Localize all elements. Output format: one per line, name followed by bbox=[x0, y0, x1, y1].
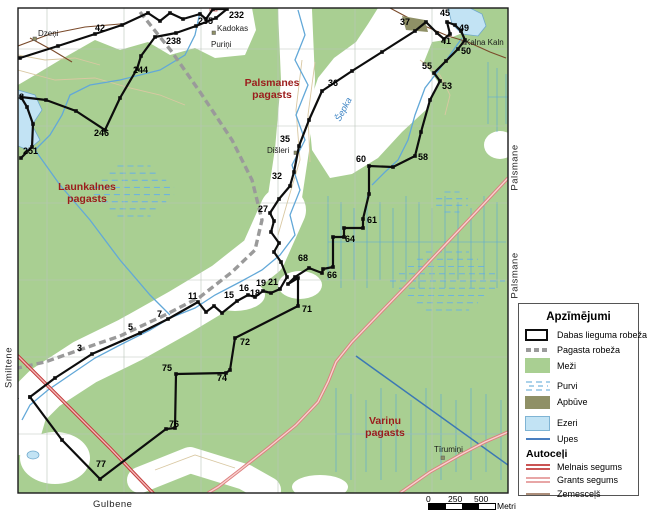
boundary-vertex bbox=[391, 165, 395, 169]
neighbor-label-palsmane-upper: Palsmane bbox=[510, 128, 521, 208]
boundary-vertex bbox=[286, 282, 290, 286]
boundary-vertex bbox=[28, 395, 32, 399]
boundary-vertex bbox=[279, 260, 283, 264]
reserve-boundary-symbol bbox=[525, 329, 551, 341]
boundary-point-label: 5 bbox=[128, 322, 133, 332]
boundary-vertex bbox=[272, 219, 276, 223]
boundary-point-label: 36 bbox=[328, 78, 338, 88]
boundary-vertex bbox=[53, 376, 57, 380]
boundary-vertex bbox=[331, 235, 335, 239]
boundary-vertex bbox=[60, 438, 64, 442]
boundary-vertex bbox=[432, 71, 436, 75]
boundary-vertex bbox=[380, 50, 384, 54]
boundary-vertex bbox=[419, 130, 423, 134]
boundary-point-label: 18 bbox=[250, 288, 260, 298]
boundary-vertex bbox=[288, 184, 292, 188]
boundary-point-label: 11 bbox=[188, 291, 198, 301]
legend-item-built-up: Apbūve bbox=[525, 396, 632, 409]
boundary-point-label: 61 bbox=[367, 215, 377, 225]
parish-name-label: Palsmanes bbox=[245, 77, 300, 89]
boundary-point-label: 75 bbox=[162, 363, 172, 373]
boundary-vertex bbox=[435, 31, 439, 35]
boundary-point-label: 58 bbox=[418, 152, 428, 162]
boundary-vertex bbox=[297, 144, 301, 148]
boundary-vertex bbox=[269, 230, 273, 234]
boundary-vertex bbox=[56, 44, 60, 48]
boundary-point-label: 16 bbox=[239, 283, 249, 293]
legend-item-paved-road: Melnais segums bbox=[525, 462, 632, 472]
boundary-vertex bbox=[98, 477, 102, 481]
boundary-vertex bbox=[204, 310, 208, 314]
boundary-vertex bbox=[269, 291, 273, 295]
boundary-vertex bbox=[19, 156, 23, 160]
place-label: Puriņi bbox=[211, 40, 232, 49]
boundary-vertex bbox=[277, 197, 281, 201]
boundary-vertex bbox=[413, 154, 417, 158]
building bbox=[212, 31, 216, 35]
boundary-vertex bbox=[164, 427, 168, 431]
boundary-point-label: 41 bbox=[441, 36, 451, 46]
parish-name-label: pagasts bbox=[252, 89, 292, 101]
boundary-point-label: 68 bbox=[298, 253, 308, 263]
legend-panel: Apzīmējumi Dabas lieguma robeža Pagasta … bbox=[518, 303, 639, 496]
open-land-area bbox=[292, 475, 348, 499]
boundary-vertex bbox=[25, 105, 29, 109]
boundary-point-label: 32 bbox=[272, 171, 282, 181]
boundary-point-label: 55 bbox=[422, 61, 432, 71]
boundary-point-label: 49 bbox=[459, 23, 469, 33]
boundary-vertex bbox=[158, 19, 162, 23]
legend-item-lake: Ezeri bbox=[525, 416, 632, 431]
legend-item-swamp: Purvi bbox=[525, 380, 632, 392]
boundary-vertex bbox=[413, 29, 417, 33]
parish-name-label: Variņu bbox=[369, 415, 401, 427]
boundary-point-label: 35 bbox=[280, 134, 290, 144]
place-label: Kalna Kaln bbox=[465, 38, 504, 47]
boundary-vertex bbox=[367, 192, 371, 196]
boundary-vertex bbox=[285, 275, 289, 279]
open-land-area bbox=[278, 271, 322, 299]
boundary-point-label: 3 bbox=[77, 343, 82, 353]
boundary-vertex bbox=[139, 54, 143, 58]
boundary-point-label: 71 bbox=[302, 304, 312, 314]
legend-item-parish-boundary: Pagasta robeža bbox=[525, 345, 632, 355]
boundary-point-label: 37 bbox=[400, 17, 410, 27]
boundary-point-label: 246 bbox=[94, 128, 109, 138]
boundary-vertex bbox=[296, 304, 300, 308]
pond bbox=[27, 451, 39, 459]
boundary-vertex bbox=[456, 47, 460, 51]
boundary-vertex bbox=[361, 217, 365, 221]
boundary-vertex bbox=[278, 287, 282, 291]
boundary-point-label: 235 bbox=[198, 16, 213, 26]
boundary-point-label: 232 bbox=[229, 10, 244, 20]
boundary-vertex bbox=[31, 122, 35, 126]
building-outline bbox=[198, 2, 207, 8]
boundary-vertex bbox=[444, 59, 448, 63]
boundary-vertex bbox=[174, 31, 178, 35]
built-up-symbol bbox=[525, 396, 551, 409]
boundary-point-label: 53 bbox=[442, 81, 452, 91]
boundary-point-label: 248 bbox=[9, 92, 24, 102]
boundary-vertex bbox=[272, 250, 276, 254]
scale-bar: 0 250 500 Metri bbox=[424, 494, 534, 514]
legend-item-gravel-road: Grants segums bbox=[525, 475, 632, 485]
boundary-vertex bbox=[74, 109, 78, 113]
boundary-vertex bbox=[261, 289, 265, 293]
boundary-vertex bbox=[18, 56, 22, 60]
parish-boundary-symbol bbox=[525, 346, 551, 354]
map-layers: 1357111516181921273235363745494150555358… bbox=[0, 2, 516, 515]
boundary-vertex bbox=[307, 266, 311, 270]
boundary-vertex bbox=[293, 275, 297, 279]
boundary-vertex bbox=[235, 299, 239, 303]
boundary-vertex bbox=[138, 331, 142, 335]
boundary-vertex bbox=[292, 170, 296, 174]
boundary-vertex bbox=[307, 118, 311, 122]
scale-unit: Metri bbox=[497, 501, 516, 511]
place-label: Tīrumiņi bbox=[434, 445, 463, 454]
legend-title: Apzīmējumi bbox=[525, 311, 632, 323]
boundary-vertex bbox=[153, 35, 157, 39]
boundary-point-label: 76 bbox=[169, 419, 179, 429]
boundary-vertex bbox=[90, 352, 94, 356]
boundary-point-label: 251 bbox=[23, 146, 38, 156]
river-symbol bbox=[525, 436, 551, 442]
boundary-point-label: 77 bbox=[96, 459, 106, 469]
boundary-vertex bbox=[120, 23, 124, 27]
building bbox=[441, 456, 445, 460]
boundary-vertex bbox=[212, 304, 216, 308]
boundary-point-label: 72 bbox=[240, 337, 250, 347]
legend-roads-subtitle: Autoceļi bbox=[526, 448, 632, 460]
parish-name-label: pagasts bbox=[365, 427, 405, 439]
boundary-point-label: 40 bbox=[3, 49, 13, 59]
boundary-vertex bbox=[320, 271, 324, 275]
boundary-vertex bbox=[428, 98, 432, 102]
map-document: 1357111516181921273235363745494150555358… bbox=[0, 0, 650, 518]
boundary-vertex bbox=[228, 368, 232, 372]
boundary-vertex bbox=[181, 17, 185, 21]
boundary-point-label: 27 bbox=[258, 204, 268, 214]
legend-item-forest: Meži bbox=[525, 358, 632, 373]
gravel-road-symbol bbox=[525, 476, 551, 484]
boundary-vertex bbox=[214, 16, 218, 20]
boundary-point-label: 42 bbox=[95, 23, 105, 33]
place-label: Dišleri bbox=[267, 146, 289, 155]
neighbor-label-gulbene: Gulbene bbox=[93, 499, 132, 510]
legend-item-river: Upes bbox=[525, 434, 632, 444]
boundary-point-label: 244 bbox=[133, 65, 148, 75]
boundary-point-label: 45 bbox=[440, 8, 450, 18]
boundary-vertex bbox=[361, 226, 365, 230]
parish-name-label: Launkalnes bbox=[58, 181, 116, 193]
boundary-point-label: 7 bbox=[157, 309, 162, 319]
scale-bar-segments bbox=[428, 503, 496, 510]
boundary-point-label: 19 bbox=[256, 278, 266, 288]
neighbor-label-smiltene: Smiltene bbox=[4, 328, 15, 408]
boundary-point-label: 74 bbox=[217, 373, 227, 383]
paved-road-symbol bbox=[525, 463, 551, 471]
lake-symbol bbox=[525, 416, 551, 431]
boundary-vertex bbox=[44, 98, 48, 102]
boundary-point-label: 238 bbox=[166, 36, 181, 46]
boundary-vertex bbox=[118, 96, 122, 100]
boundary-vertex bbox=[342, 226, 346, 230]
boundary-vertex bbox=[367, 164, 371, 168]
boundary-vertex bbox=[350, 69, 354, 73]
boundary-point-label: 50 bbox=[461, 46, 471, 56]
boundary-vertex bbox=[331, 265, 335, 269]
boundary-point-label: 21 bbox=[268, 277, 278, 287]
boundary-vertex bbox=[146, 11, 150, 15]
boundary-point-label: 15 bbox=[224, 290, 234, 300]
place-label: Dzeņi bbox=[38, 29, 59, 38]
boundary-vertex bbox=[166, 317, 170, 321]
boundary-vertex bbox=[168, 11, 172, 15]
boundary-vertex bbox=[445, 20, 449, 24]
parish-name-label: pagasts bbox=[67, 193, 107, 205]
boundary-point-label: 60 bbox=[356, 154, 366, 164]
legend-item-reserve-boundary: Dabas lieguma robeža bbox=[525, 329, 632, 341]
boundary-point-label: 66 bbox=[327, 270, 337, 280]
building bbox=[33, 37, 37, 41]
boundary-vertex bbox=[321, 267, 325, 271]
boundary-vertex bbox=[424, 20, 428, 24]
legend-item-dirt-road: Zemesceļš bbox=[525, 489, 632, 499]
boundary-vertex bbox=[277, 241, 281, 245]
boundary-vertex bbox=[174, 372, 178, 376]
boundary-point-label: 64 bbox=[345, 234, 355, 244]
boundary-vertex bbox=[220, 311, 224, 315]
swamp-symbol bbox=[525, 380, 551, 392]
boundary-vertex bbox=[233, 336, 237, 340]
boundary-vertex bbox=[268, 211, 272, 215]
place-label: Kadokas bbox=[217, 24, 248, 33]
forest-symbol bbox=[525, 358, 551, 373]
boundary-vertex bbox=[453, 23, 457, 27]
boundary-vertex bbox=[320, 89, 324, 93]
